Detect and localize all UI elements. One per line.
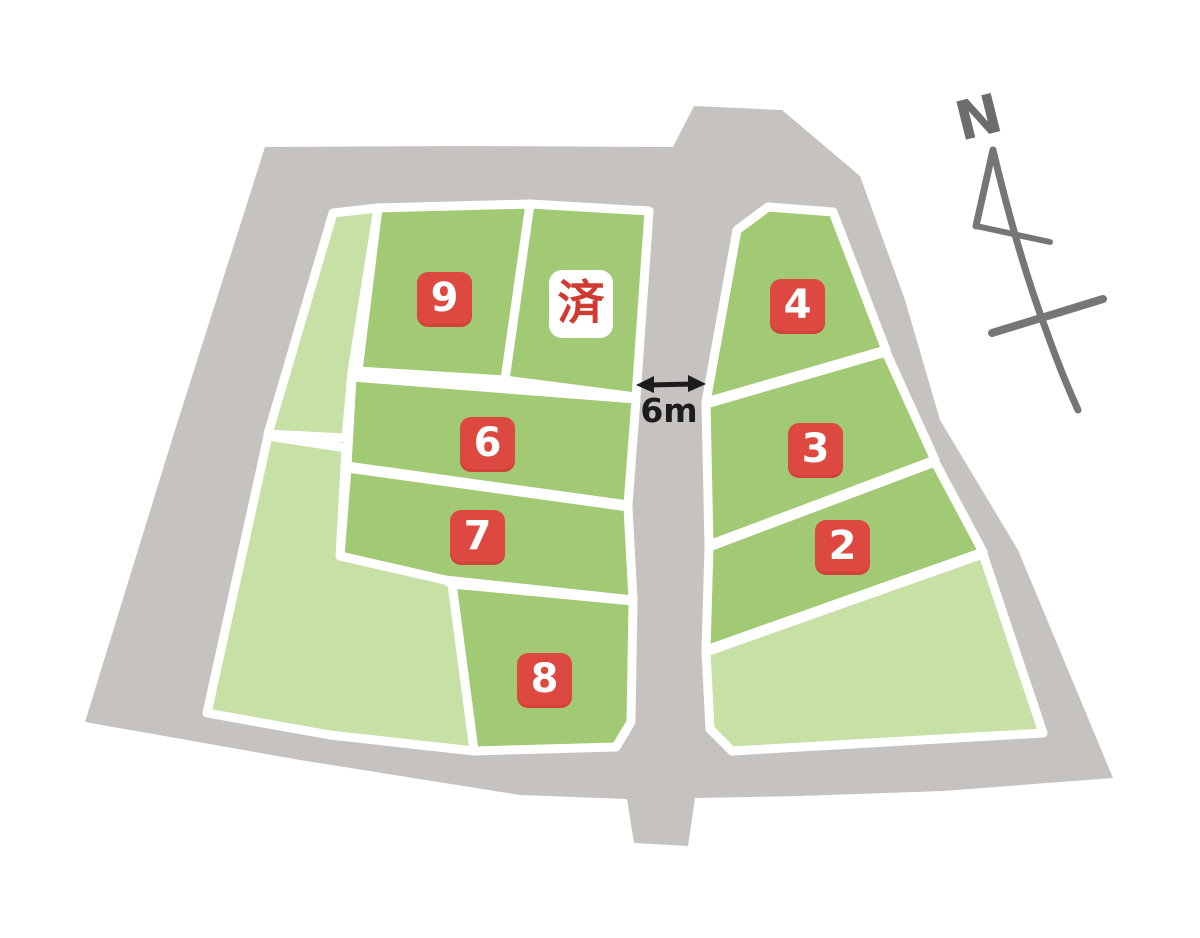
lot-7-number: 7 <box>464 516 492 556</box>
north-compass-icon <box>976 150 1103 410</box>
lot-7-badge: 7 <box>450 510 505 565</box>
lot-3-number: 3 <box>802 429 830 469</box>
lot-sold-badge: 済 <box>549 270 613 338</box>
road-width-label: 6m <box>634 391 704 430</box>
lot-9-number: 9 <box>431 278 459 318</box>
lot-2-badge: 2 <box>815 520 870 575</box>
lot-6-badge: 6 <box>460 417 515 472</box>
lot-9-badge: 9 <box>417 272 472 327</box>
lot-map-illustration: 9 済 6 7 8 4 3 2 6m N <box>0 0 1200 938</box>
site-plan-svg <box>0 0 1200 938</box>
lot-4-badge: 4 <box>770 279 825 334</box>
lot-6-number: 6 <box>474 423 502 463</box>
lot-8-badge: 8 <box>517 653 572 708</box>
lot-2-number: 2 <box>829 526 857 566</box>
lot-8-number: 8 <box>531 659 559 699</box>
lot-sold-label: 済 <box>558 280 605 327</box>
lot-4-number: 4 <box>784 285 812 325</box>
lot-3-badge: 3 <box>788 423 843 478</box>
